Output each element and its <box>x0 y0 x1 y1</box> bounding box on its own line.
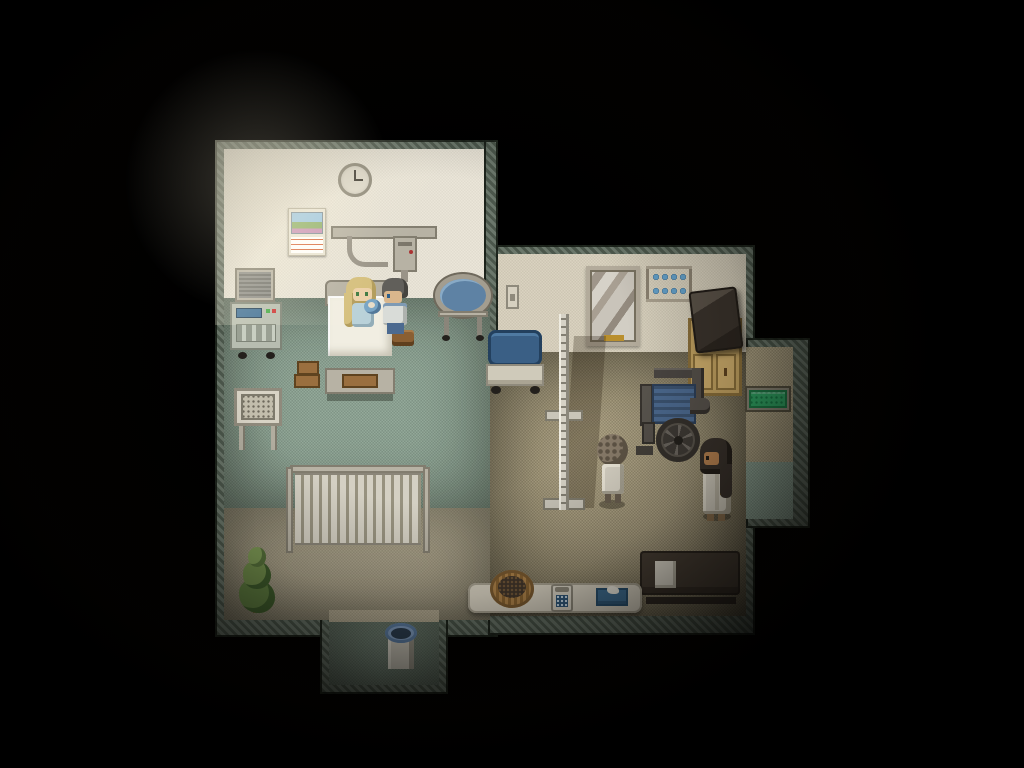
rail-pole <box>559 314 569 510</box>
gurney-wheel <box>530 386 540 394</box>
monitor-wheel <box>238 352 247 359</box>
bassinet-leg <box>444 317 449 337</box>
bassinet-wheel <box>442 335 450 341</box>
east-exit-teal-floor <box>746 462 793 519</box>
alcove-floor <box>329 622 439 685</box>
light-switch[interactable] <box>506 285 519 309</box>
tray-leg <box>271 426 277 450</box>
cup-shelf[interactable] <box>646 266 692 302</box>
wooden-crates[interactable] <box>294 361 322 389</box>
wicker-basket[interactable] <box>490 570 534 608</box>
wheelchair-wheel <box>656 418 700 462</box>
potted-plant[interactable] <box>235 545 279 617</box>
mirror-plaque <box>604 335 624 341</box>
exit-door-mat[interactable] <box>745 386 791 412</box>
basket-hole <box>498 576 526 598</box>
woman-face <box>704 452 719 465</box>
character-father[interactable] <box>380 278 410 354</box>
cups-row <box>651 271 687 283</box>
character-dark-haired-woman[interactable] <box>698 438 734 522</box>
calendar-date-grid <box>291 237 323 253</box>
overbed-arm <box>331 224 437 280</box>
father-face <box>384 291 402 303</box>
tray-leg <box>239 426 245 450</box>
baby-bassinet[interactable] <box>438 279 490 341</box>
game-viewport <box>0 0 1024 768</box>
overbed-arm-hook <box>347 236 388 267</box>
father-legs <box>387 323 404 334</box>
clock-minute-hand <box>354 170 356 180</box>
elderly-dress <box>602 464 624 494</box>
bassinet-leg <box>477 317 482 337</box>
wheelchair-caster <box>642 422 655 444</box>
radiator-slats <box>295 473 421 545</box>
wall-clock[interactable] <box>338 163 372 197</box>
radiator-rail <box>290 465 426 473</box>
woman-feet <box>718 514 725 521</box>
wall-calendar[interactable] <box>288 208 326 256</box>
bassinet-wheel <box>476 335 484 341</box>
waiting-bench[interactable] <box>640 551 742 607</box>
elderly-feet <box>615 494 621 503</box>
bench-paper <box>655 561 676 588</box>
bassinet-basin <box>440 279 486 312</box>
father-shirt <box>383 303 407 325</box>
monitor-wheel <box>266 352 275 359</box>
television[interactable] <box>688 286 743 353</box>
overbed-arm-device <box>393 236 417 272</box>
elderly-feet <box>605 494 611 503</box>
phone-keypad <box>556 595 568 607</box>
alcove-floor-strip <box>329 610 439 622</box>
character-elderly-patient[interactable] <box>596 434 630 510</box>
baby-bundle <box>364 299 381 314</box>
gurney-wheel <box>491 386 501 394</box>
tray-table[interactable] <box>234 388 282 452</box>
wheelchair-hub-cyl <box>690 398 710 414</box>
vitals-monitor[interactable] <box>230 268 282 358</box>
gurney-mattress <box>488 330 542 366</box>
gurney-base <box>486 364 544 386</box>
trash-can[interactable] <box>385 623 417 671</box>
elderly-hair <box>597 434 628 466</box>
bench-base <box>646 597 736 604</box>
bed-footboard <box>325 368 395 394</box>
cups-row <box>651 285 687 297</box>
wheelchair-footrest <box>636 446 653 455</box>
monitor-body <box>230 302 282 350</box>
trash-rim <box>385 623 417 643</box>
telephone[interactable] <box>551 584 573 612</box>
calendar-picture <box>291 212 323 234</box>
gurney[interactable] <box>486 330 544 398</box>
walking-rail[interactable] <box>540 314 602 516</box>
bed-shadow <box>327 394 393 401</box>
radiator[interactable] <box>286 465 430 555</box>
radiator-leg <box>286 467 293 553</box>
monitor-screen <box>235 268 275 302</box>
radiator-leg <box>423 467 430 553</box>
woman-feet <box>707 514 714 521</box>
woman-hair-long <box>720 464 732 498</box>
tray-top <box>234 388 282 426</box>
tissue-box[interactable] <box>596 586 628 606</box>
character-mother[interactable] <box>344 277 382 333</box>
